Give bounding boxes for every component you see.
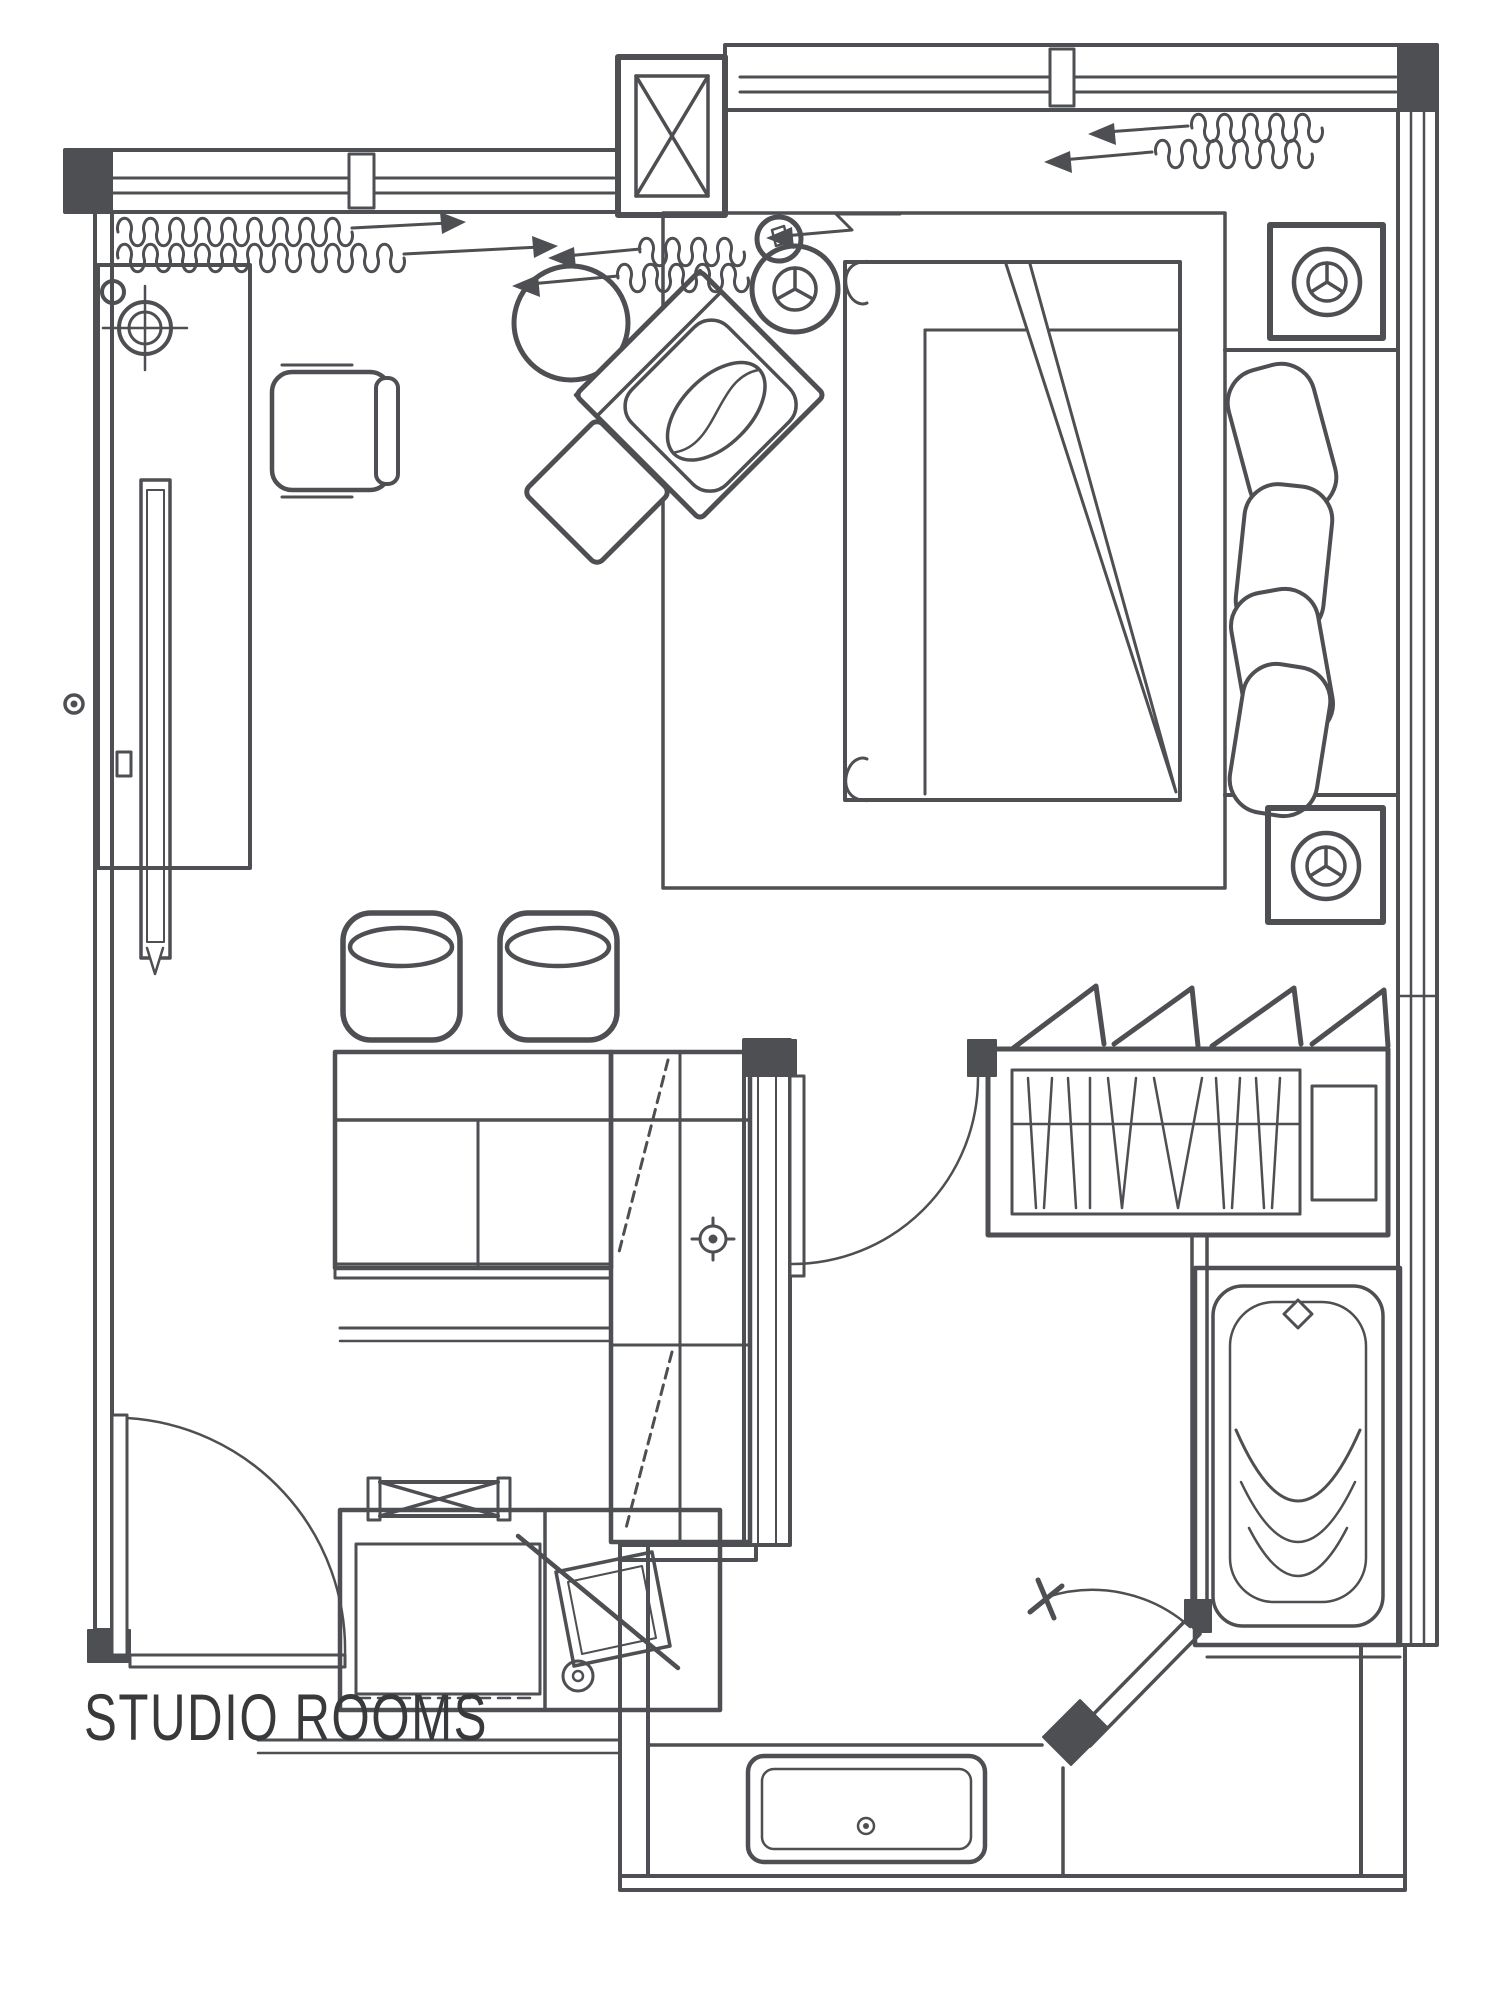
kitchen-counter <box>335 1052 611 1268</box>
fixture-cross <box>103 286 187 370</box>
wall-sconce-dot <box>71 701 77 707</box>
luggage-bench <box>356 1544 540 1694</box>
curtain-coil <box>1192 114 1323 141</box>
closet-doors-open <box>1012 986 1388 1049</box>
curtain-arrow <box>1106 126 1188 132</box>
tv-panel <box>141 480 170 958</box>
plan-shapes-layer <box>65 45 1437 1890</box>
curtain-arrow <box>404 247 540 254</box>
wall-corner-block <box>1398 45 1437 110</box>
closet-shelf-section <box>1312 1086 1376 1200</box>
floor-drain-dot <box>709 1235 717 1243</box>
curtain-arrow-head <box>1088 123 1116 145</box>
curtain-coil <box>618 264 749 291</box>
entry-door-leaf <box>112 1415 127 1655</box>
curtain-arrow-head <box>440 212 466 234</box>
tub-basin-curve <box>1249 1528 1347 1576</box>
entry-threshold <box>130 1655 345 1667</box>
rack-end <box>498 1478 510 1520</box>
desk-chair-seat <box>272 372 390 490</box>
curtain-coil <box>640 238 745 265</box>
vanity-sink <box>748 1756 985 1862</box>
tub-faucet <box>1284 1300 1312 1328</box>
closet-hangers <box>1028 1078 1280 1208</box>
plan-title: STUDIO ROOMS <box>84 1680 488 1754</box>
door-jamb <box>968 1040 996 1076</box>
curtain-coil <box>1156 140 1313 167</box>
tv-panel-inner <box>147 490 164 942</box>
stool-seat <box>507 928 609 966</box>
curtain-arrow-head <box>512 275 540 297</box>
bar-stool <box>343 913 460 1040</box>
bed-duvet <box>845 262 1180 800</box>
tv-pointer <box>147 948 163 974</box>
curtain-arrow-head <box>532 236 558 258</box>
curtain-arrow <box>1062 152 1152 160</box>
duvet-corner-curl <box>846 758 872 801</box>
plan-canvas: STUDIO ROOMS <box>0 0 1512 2000</box>
vanity-sink-inner <box>762 1769 971 1849</box>
curtain-arrow <box>566 249 640 256</box>
rack-end <box>368 1478 380 1520</box>
cabinet-door-swing <box>625 1352 672 1532</box>
bath-door-swing-arc <box>1047 1590 1190 1627</box>
wall-bottom <box>620 1876 1405 1890</box>
door-stop-mark <box>1030 1580 1062 1618</box>
duvet-fold <box>1006 264 1176 792</box>
faucet-base-inner <box>573 1671 583 1681</box>
sink-drain-dot <box>864 1824 869 1829</box>
bed-platform <box>663 213 1225 888</box>
curtain-coil <box>118 244 405 271</box>
cabinet-door-swing <box>618 1060 668 1256</box>
tub-basin-curve <box>1241 1482 1355 1542</box>
window-mullion <box>1050 49 1074 106</box>
wall-vanity-connector <box>620 1545 756 1560</box>
wall-right-lower <box>1361 1645 1405 1876</box>
curtain-arrow-head <box>1044 151 1072 173</box>
tub-basin-curve <box>1236 1430 1360 1501</box>
bar-stool <box>500 913 617 1040</box>
hall-door-swing-arc <box>792 1078 978 1264</box>
duvet-corner-curl <box>846 261 872 304</box>
wall-corner-block <box>65 150 112 212</box>
desk-console <box>98 265 250 868</box>
entry-door-swing-arc <box>127 1418 345 1655</box>
desk-chair-back <box>376 378 398 484</box>
bathtub-inner <box>1230 1302 1366 1602</box>
curtain-coil <box>118 218 353 245</box>
window-mullion <box>349 154 374 208</box>
wall-top-left-window <box>65 150 618 212</box>
hall-door-leaf <box>790 1076 804 1276</box>
tv-bracket <box>117 752 131 776</box>
wall-right <box>1398 110 1437 1645</box>
curtain-arrow <box>352 223 448 228</box>
stool-seat <box>350 928 452 966</box>
floor-plan-page: STUDIO ROOMS <box>0 0 1512 2000</box>
